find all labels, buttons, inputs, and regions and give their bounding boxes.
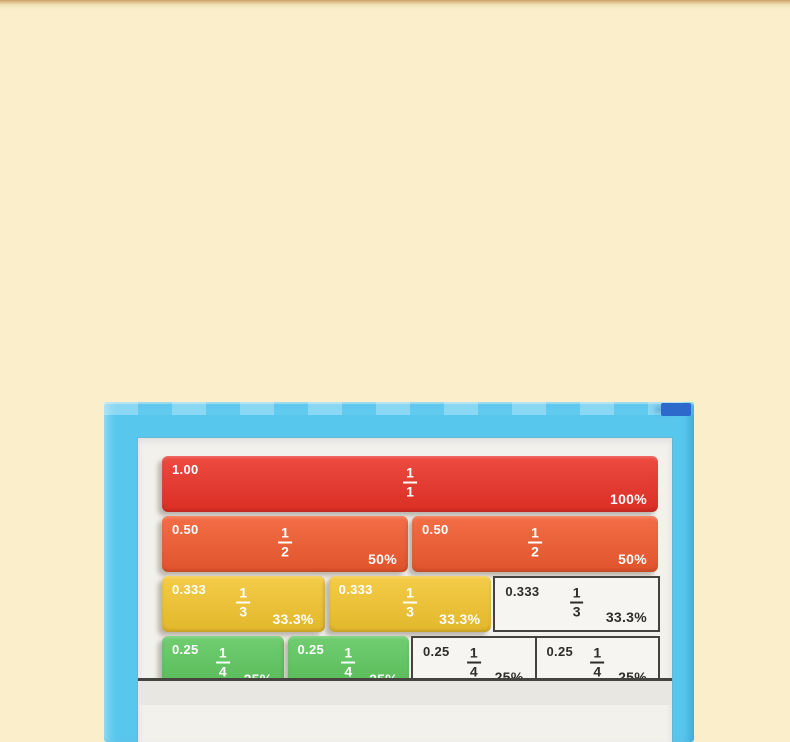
fraction-numerator: 1 — [341, 646, 355, 664]
percent-label: 50% — [368, 551, 397, 567]
tile-row: 1.0011100% — [160, 456, 660, 512]
fraction-tile: 0.3331333.3% — [162, 576, 325, 632]
decimal-label: 0.25 — [172, 642, 199, 657]
fraction-numerator: 1 — [403, 586, 417, 604]
tile-row: 0.501250%0.501250% — [160, 516, 660, 572]
decimal-label: 0.333 — [339, 582, 373, 597]
fraction-tile: 1.0011100% — [162, 456, 658, 512]
fraction-label: 14 — [590, 646, 604, 680]
fraction-denominator: 3 — [236, 604, 250, 620]
fraction-label: 13 — [570, 586, 584, 620]
fraction-numerator: 1 — [216, 646, 230, 664]
decimal-label: 0.50 — [422, 522, 449, 537]
cropped-next-row — [138, 678, 672, 705]
decimal-label: 0.25 — [547, 644, 574, 659]
decimal-label: 0.333 — [505, 584, 539, 599]
decimal-label: 0.25 — [423, 644, 450, 659]
fraction-denominator: 3 — [570, 604, 584, 620]
percent-label: 33.3% — [272, 611, 313, 627]
fraction-label: 14 — [216, 646, 230, 680]
board-white-panel: 1.0011100%0.501250%0.501250%0.3331333.3%… — [138, 438, 672, 742]
fraction-denominator: 2 — [278, 544, 292, 560]
fraction-numerator: 1 — [570, 586, 584, 604]
fraction-numerator: 1 — [467, 646, 481, 664]
percent-label: 33.3% — [606, 609, 647, 625]
fraction-label: 12 — [528, 526, 542, 560]
product-photo: { "scene": { "background_color": "#faefc… — [0, 0, 790, 700]
fraction-board: 1.0011100%0.501250%0.501250%0.3331333.3%… — [104, 402, 694, 742]
percent-label: 33.3% — [439, 611, 480, 627]
fraction-denominator: 1 — [403, 484, 417, 500]
fraction-label: 11 — [403, 466, 417, 500]
percent-label: 50% — [618, 551, 647, 567]
fraction-tile: 0.501250% — [162, 516, 408, 572]
fraction-numerator: 1 — [236, 586, 250, 604]
decimal-label: 0.25 — [298, 642, 325, 657]
decimal-label: 1.00 — [172, 462, 199, 477]
fraction-denominator: 3 — [403, 604, 417, 620]
tile-row: 0.3331333.3%0.3331333.3%0.3331333.3% — [160, 576, 660, 632]
fraction-label: 14 — [341, 646, 355, 680]
fraction-numerator: 1 — [590, 646, 604, 664]
tile-rows: 1.0011100%0.501250%0.501250%0.3331333.3%… — [160, 456, 660, 696]
fraction-tile: 0.3331333.3% — [329, 576, 492, 632]
photo-top-edge-strip — [0, 0, 790, 9]
fraction-slot: 0.3331333.3% — [493, 576, 660, 632]
fraction-numerator: 1 — [403, 466, 417, 484]
fraction-numerator: 1 — [278, 526, 292, 544]
fraction-tile: 0.501250% — [412, 516, 658, 572]
fraction-numerator: 1 — [528, 526, 542, 544]
fraction-label: 13 — [403, 586, 417, 620]
fraction-label: 14 — [467, 646, 481, 680]
decimal-label: 0.333 — [172, 582, 206, 597]
board-corner-accent — [661, 403, 691, 416]
fraction-label: 12 — [278, 526, 292, 560]
fraction-label: 13 — [236, 586, 250, 620]
percent-label: 100% — [610, 491, 647, 507]
decimal-label: 0.50 — [172, 522, 199, 537]
fraction-denominator: 2 — [528, 544, 542, 560]
board-frame-top-band — [104, 402, 694, 415]
